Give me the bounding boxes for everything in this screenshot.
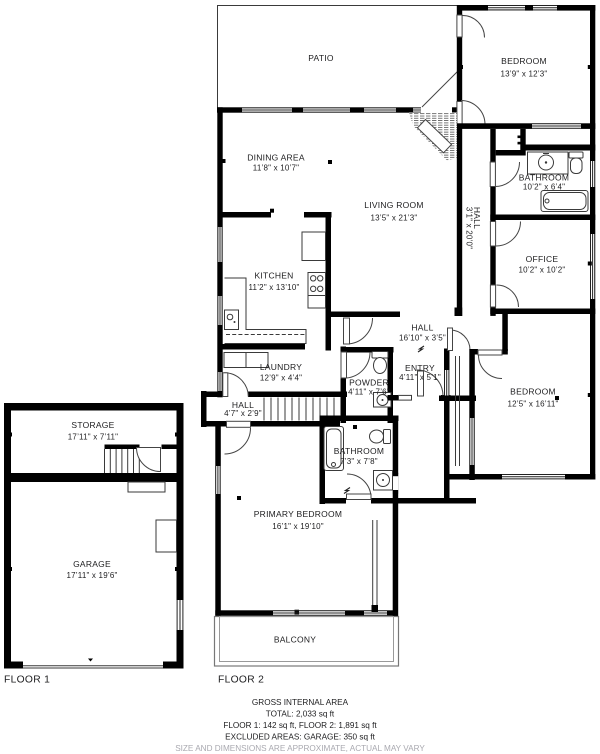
svg-text:DINING AREA: DINING AREA — [247, 153, 305, 163]
svg-text:BEDROOM: BEDROOM — [510, 387, 556, 397]
svg-text:10’2" x 10’2": 10’2" x 10’2" — [519, 266, 566, 275]
svg-text:GROSS INTERNAL AREA: GROSS INTERNAL AREA — [252, 698, 349, 707]
svg-text:PATIO: PATIO — [308, 53, 334, 63]
svg-text:LAUNDRY: LAUNDRY — [260, 362, 302, 372]
svg-text:BATHROOM: BATHROOM — [519, 173, 569, 183]
svg-text:11’8" x 10’7": 11’8" x 10’7" — [253, 164, 299, 173]
svg-text:ENTRY: ENTRY — [405, 363, 435, 373]
svg-text:KITCHEN: KITCHEN — [254, 271, 293, 281]
svg-text:3’1" x 20’0": 3’1" x 20’0" — [465, 207, 474, 249]
svg-text:12’9" x 4’4": 12’9" x 4’4" — [260, 374, 302, 383]
svg-text:13’9" x 12’3": 13’9" x 12’3" — [501, 70, 548, 79]
svg-text:OFFICE: OFFICE — [526, 254, 559, 264]
svg-text:GARAGE: GARAGE — [73, 559, 111, 569]
svg-text:16’10" x 3’5": 16’10" x 3’5" — [399, 334, 446, 343]
svg-text:7’3" x 7’8": 7’3" x 7’8" — [340, 457, 378, 466]
svg-text:SIZE AND DIMENSIONS ARE APPROX: SIZE AND DIMENSIONS ARE APPROXIMATE, ACT… — [175, 744, 425, 753]
svg-text:11’2" x 13’10": 11’2" x 13’10" — [248, 283, 299, 292]
svg-text:BALCONY: BALCONY — [274, 635, 316, 645]
svg-text:BEDROOM: BEDROOM — [501, 56, 547, 66]
svg-text:LIVING ROOM: LIVING ROOM — [364, 200, 423, 210]
svg-text:17’11" x 7’11": 17’11" x 7’11" — [68, 433, 118, 442]
svg-text:HALL: HALL — [411, 323, 433, 333]
svg-text:4’11" x 7’6": 4’11" x 7’6" — [348, 388, 390, 397]
svg-text:FLOOR 2: FLOOR 2 — [218, 675, 264, 686]
svg-text:FLOOR 1: 142 sq ft, FLOOR 2: 1: FLOOR 1: 142 sq ft, FLOOR 2: 1,891 sq ft — [223, 721, 377, 730]
svg-text:12’5" x 16’11": 12’5" x 16’11" — [507, 400, 558, 409]
svg-text:EXCLUDED AREAS: GARAGE: 350 sq: EXCLUDED AREAS: GARAGE: 350 sq ft — [225, 733, 375, 742]
svg-text:PRIMARY BEDROOM: PRIMARY BEDROOM — [254, 509, 342, 519]
svg-text:13’5" x 21’3": 13’5" x 21’3" — [371, 214, 418, 223]
svg-text:16’1" x 19’10": 16’1" x 19’10" — [272, 522, 324, 531]
svg-text:17’11" x 19’6": 17’11" x 19’6" — [66, 571, 117, 580]
svg-text:FLOOR 1: FLOOR 1 — [4, 675, 50, 686]
svg-text:POWDER: POWDER — [349, 378, 389, 388]
svg-text:TOTAL: 2,033 sq ft: TOTAL: 2,033 sq ft — [266, 710, 335, 719]
svg-text:STORAGE: STORAGE — [71, 420, 114, 430]
svg-text:4’11" x 5’1": 4’11" x 5’1" — [399, 373, 441, 382]
svg-text:BATHROOM: BATHROOM — [334, 446, 384, 456]
svg-text:10’2" x 6’4": 10’2" x 6’4" — [523, 183, 565, 192]
svg-text:4’7" x 2’9": 4’7" x 2’9" — [224, 409, 262, 418]
